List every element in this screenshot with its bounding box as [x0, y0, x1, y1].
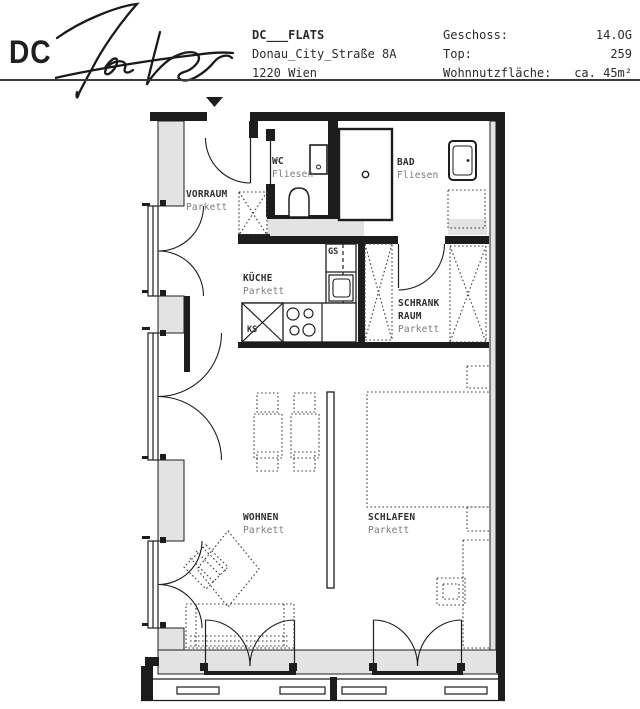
dishwasher-label: GS	[328, 247, 338, 257]
nightstand-bottom-icon	[467, 507, 490, 531]
floor-plan-drawing: VORRAUM Parkett WC Fliesen BAD Fliesen K…	[0, 0, 640, 709]
floorplan-page: DC DC___FLATSDonau_City_Straße 8A1220 Wi…	[0, 0, 640, 709]
window-swing-arcs	[159, 206, 222, 628]
room-label-bad: BAD	[397, 157, 415, 168]
entrance-marker-icon	[206, 97, 223, 107]
vorraum-wardrobe-icon	[239, 192, 267, 235]
room-divider-panel	[327, 392, 334, 588]
room-label-vorraum: VORRAUM	[186, 189, 228, 200]
kitchen-sink-icon	[329, 275, 353, 301]
side-table-icon	[437, 578, 465, 605]
room-label-wohnen: WOHNEN	[243, 512, 279, 523]
svg-text:Parkett: Parkett	[243, 525, 284, 536]
room-label-wc: WC	[272, 156, 284, 167]
balcony-slab	[280, 687, 325, 694]
room-label-kueche: KÜCHE	[243, 273, 273, 284]
svg-text:Parkett: Parkett	[398, 324, 439, 335]
svg-text:Fliesen: Fliesen	[397, 170, 438, 181]
svg-text:RAUM: RAUM	[398, 311, 422, 322]
svg-text:Fliesen: Fliesen	[272, 169, 313, 180]
bathroom-sink-icon	[449, 141, 476, 180]
coffee-table-icon	[184, 531, 259, 607]
entrance-door	[206, 138, 251, 183]
facade-windows	[148, 206, 222, 628]
bed-icon	[367, 392, 490, 507]
balcony-slab	[177, 687, 219, 694]
dresser-icon	[463, 540, 490, 648]
toilet-icon	[289, 188, 309, 217]
room-label-schrankraum: SCHRANK	[398, 298, 440, 309]
room-label-schlafen: SCHLAFEN	[368, 512, 415, 523]
balcony	[141, 679, 505, 701]
svg-text:Parkett: Parkett	[186, 202, 227, 213]
balcony-slab	[445, 687, 487, 694]
svg-text:Parkett: Parkett	[368, 525, 409, 536]
closet-left-icon	[365, 244, 392, 340]
refrigerator-label: KS	[247, 325, 257, 335]
shower-icon	[339, 129, 392, 220]
schrankraum-door	[399, 244, 445, 290]
dining-set-icon	[254, 393, 319, 471]
balcony-slab	[342, 687, 386, 694]
closet-right-icon	[450, 246, 486, 342]
svg-text:Parkett: Parkett	[243, 286, 284, 297]
refrigerator-icon	[242, 303, 283, 342]
nightstand-top-icon	[467, 366, 490, 388]
